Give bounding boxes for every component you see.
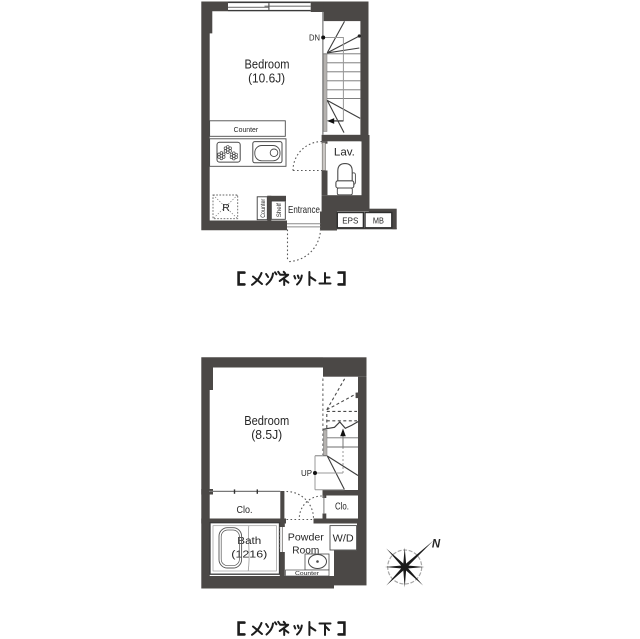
svg-text:Bath: Bath [237,535,261,547]
svg-text:Counter: Counter [234,125,259,134]
svg-text:(8.5J): (8.5J) [251,428,282,442]
svg-text:Shelf: Shelf [276,203,283,217]
svg-text:R: R [222,202,230,214]
svg-text:Bedroom: Bedroom [245,56,290,71]
svg-text:DN: DN [309,33,320,42]
svg-text:Clo.: Clo. [237,505,253,516]
svg-text:Bedroom: Bedroom [244,413,289,428]
svg-text:Powder: Powder [288,531,325,543]
svg-text:UP: UP [301,469,312,478]
svg-text:Counter: Counter [260,198,267,218]
svg-text:W/D: W/D [333,533,354,545]
svg-text:Lav.: Lav. [334,146,355,158]
svg-text:Clo.: Clo. [335,502,349,513]
svg-text:Entrance: Entrance [288,204,320,216]
svg-text:Counter: Counter [295,571,319,577]
svg-text:N: N [432,539,441,551]
svg-text:MB: MB [373,216,384,226]
svg-text:(1216): (1216) [231,549,267,561]
svg-text:EPS: EPS [342,216,358,226]
svg-text:(10.6J): (10.6J) [248,71,285,85]
